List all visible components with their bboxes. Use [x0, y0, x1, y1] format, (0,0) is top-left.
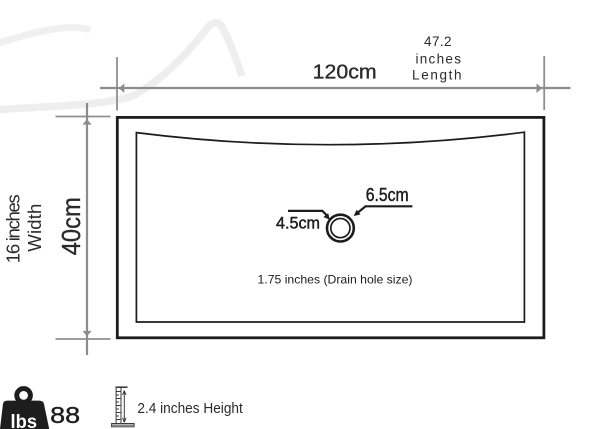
svg-text:Length: Length [412, 68, 462, 83]
svg-text:2.4 inches Height: 2.4 inches Height [137, 401, 242, 417]
svg-text:1.75 inches (Drain hole size): 1.75 inches (Drain hole size) [258, 273, 413, 287]
svg-text:88: 88 [50, 402, 80, 428]
svg-text:lbs: lbs [11, 411, 38, 429]
svg-text:120cm: 120cm [313, 62, 377, 84]
svg-text:40cm: 40cm [56, 197, 86, 255]
svg-text:16 inches: 16 inches [3, 194, 24, 263]
svg-text:inches: inches [415, 52, 461, 67]
svg-text:Width: Width [24, 204, 45, 252]
svg-text:47.2: 47.2 [424, 34, 452, 49]
svg-text:6.5cm: 6.5cm [366, 185, 409, 205]
svg-text:4.5cm: 4.5cm [276, 214, 320, 233]
